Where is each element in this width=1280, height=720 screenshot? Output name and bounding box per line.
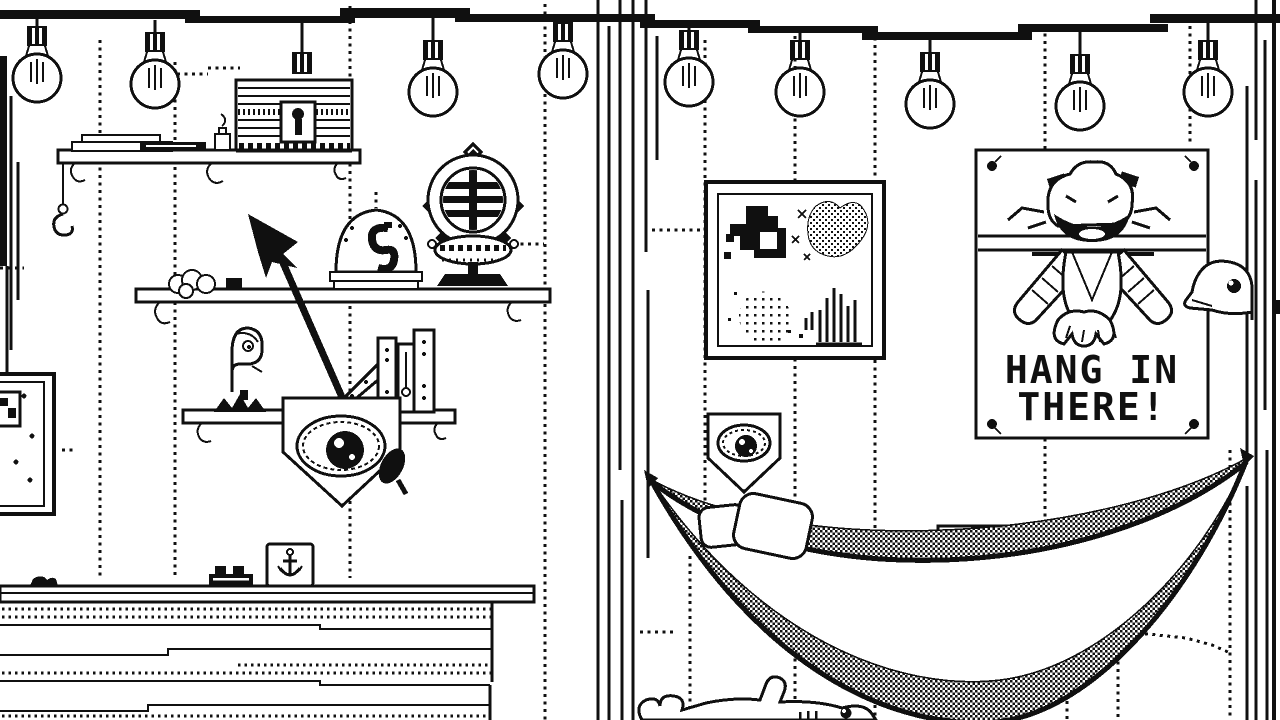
sideboard [0, 586, 534, 720]
hook-bell-jar[interactable] [330, 192, 422, 289]
middle-wall-shelf [136, 289, 550, 323]
studded-box[interactable] [209, 566, 253, 586]
light-bulb [539, 22, 587, 98]
poster-text-line2: THERE! [1017, 385, 1166, 429]
diving-helmet[interactable] [422, 144, 524, 286]
ceiling-beam [0, 8, 1280, 40]
light-bulb [409, 40, 457, 116]
pixel-art-frame[interactable] [706, 182, 884, 358]
oil-lamp[interactable] [215, 114, 230, 150]
small-block [226, 278, 242, 288]
game-scene: HANG IN THERE! [0, 0, 1280, 720]
harpoon-arrow[interactable] [248, 214, 352, 420]
treasure-chest[interactable] [236, 80, 352, 151]
hammock[interactable] [644, 448, 1254, 720]
left-wall-corner [0, 56, 18, 374]
paper-stack[interactable] [72, 135, 206, 151]
wall-frame-partial[interactable] [0, 374, 54, 514]
rope-lump[interactable] [30, 576, 58, 586]
eye-shield-small[interactable] [708, 414, 780, 492]
light-socket [292, 52, 312, 74]
string-hook[interactable] [54, 163, 73, 235]
light-bulb [131, 32, 179, 108]
light-bulb [1056, 54, 1104, 130]
eye-shield-large[interactable] [283, 398, 400, 506]
light-bulb [906, 52, 954, 128]
room-divider-post [598, 0, 657, 720]
anchor-card[interactable] [267, 544, 313, 586]
motivational-poster[interactable]: HANG IN THERE! [976, 150, 1208, 438]
light-bulb [776, 40, 824, 116]
top-wall-shelf [58, 150, 360, 183]
light-bulb [13, 26, 61, 102]
bird-statuette[interactable] [214, 328, 266, 412]
right-wall-corner [1247, 0, 1280, 720]
